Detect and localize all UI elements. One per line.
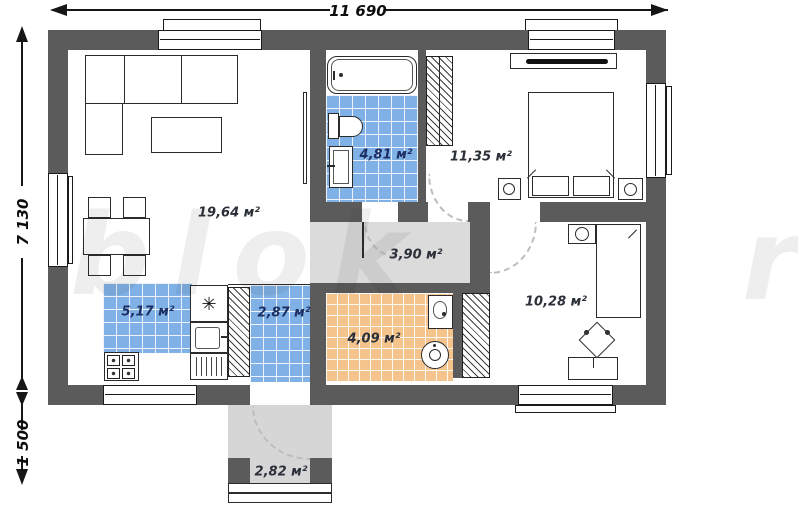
dining-table xyxy=(83,218,150,255)
single-bed xyxy=(596,224,641,318)
dimension-line xyxy=(386,9,668,11)
hallway-floor xyxy=(250,285,310,382)
bedroom-area-label: 11,35 м² xyxy=(450,150,512,165)
dimension-arrow-up xyxy=(16,26,28,42)
dining-chair xyxy=(88,197,111,218)
utility-sink-drain xyxy=(442,312,446,316)
wall-segment xyxy=(453,293,462,378)
stove-burner xyxy=(122,368,135,379)
dimension-arrow-left xyxy=(50,4,67,16)
bathroom-door-leaf xyxy=(362,222,364,258)
lamp xyxy=(624,183,637,196)
dimension-arrow-down xyxy=(16,392,28,406)
washing-machine-drum xyxy=(429,349,441,361)
washbasin-faucet xyxy=(327,165,335,167)
refrigerator-star-icon: ✳ xyxy=(201,294,216,315)
window-frame-line xyxy=(105,394,195,395)
bathtub-drain xyxy=(339,73,343,77)
floor-plan: ✳ 19,64 м² 4,81 м² 11,35 м² 3,90 м² 5,17… xyxy=(0,0,798,514)
dish-drainer xyxy=(190,353,228,380)
window-frame-line xyxy=(520,394,611,395)
wall-segment xyxy=(470,222,490,283)
wall-segment xyxy=(646,50,666,83)
bathtub-faucet xyxy=(333,71,335,80)
kitchen-sink-faucet xyxy=(221,336,228,338)
desk-divider xyxy=(593,357,594,368)
dining-chair xyxy=(123,255,146,276)
window-frame-line xyxy=(160,39,260,40)
sofa-chaise xyxy=(85,103,123,155)
lamp xyxy=(575,227,589,241)
porch-wall-stub xyxy=(310,458,332,483)
wall-segment xyxy=(48,30,158,50)
total-height-dimension: 7 130 xyxy=(14,199,32,246)
coffee-table xyxy=(151,117,222,153)
utility-sink-bowl xyxy=(433,301,447,319)
bedroom-door-arc xyxy=(428,174,468,222)
total-width-dimension: 11 690 xyxy=(329,2,386,20)
kitchen-wardrobe xyxy=(228,287,250,377)
wall-segment xyxy=(326,202,362,222)
pillow xyxy=(532,176,569,196)
toilet-bowl xyxy=(339,116,363,137)
tv xyxy=(526,59,608,64)
window-sill xyxy=(515,405,616,413)
porch-wall-stub xyxy=(228,458,250,483)
lamp xyxy=(503,183,515,195)
window-frame-line xyxy=(57,175,58,265)
window-sill xyxy=(68,176,73,264)
kitchen-window xyxy=(103,385,197,405)
refrigerator: ✳ xyxy=(190,285,228,322)
porch-area-label: 2,82 м² xyxy=(255,465,308,480)
dining-chair xyxy=(88,255,111,276)
wall-segment xyxy=(615,30,666,50)
desk-chair xyxy=(579,322,616,359)
dimension-line xyxy=(52,9,330,11)
dimension-line xyxy=(21,258,23,386)
window-sill xyxy=(666,86,672,175)
washbasin-inner xyxy=(333,150,349,184)
wall-segment xyxy=(310,385,518,405)
stove-burner xyxy=(107,368,120,379)
wall-segment xyxy=(398,202,428,222)
sofa xyxy=(85,55,238,104)
sofa-seam xyxy=(181,56,182,103)
wall-segment xyxy=(540,202,666,222)
corridor-area-label: 3,90 м² xyxy=(390,248,443,263)
living-room-area-label: 19,64 м² xyxy=(198,206,260,221)
porch-depth-dimension: 1 500 xyxy=(14,420,32,467)
wall-segment xyxy=(310,283,490,293)
dining-chair xyxy=(123,197,146,218)
second-bedroom-window xyxy=(518,385,613,405)
kitchen-sink-bowl xyxy=(195,327,220,349)
second-bedroom-area-label: 10,28 м² xyxy=(525,295,587,310)
bedroom-side-window xyxy=(646,83,666,178)
hallway-top-line xyxy=(228,284,310,285)
bathtub-inner xyxy=(331,59,413,91)
stove-burner xyxy=(122,355,135,366)
window-frame-line xyxy=(530,39,613,40)
open-door-leaf xyxy=(303,92,307,184)
hallway-area-label: 2,87 м² xyxy=(258,306,311,321)
wall-segment xyxy=(310,293,326,385)
second-bedroom-wardrobe xyxy=(462,293,490,378)
dimension-arrow-down xyxy=(16,469,28,485)
wall-segment xyxy=(310,50,326,222)
porch-step xyxy=(228,493,332,503)
dimension-line xyxy=(21,40,23,186)
chair-knob xyxy=(605,330,610,335)
wall-segment xyxy=(48,385,103,405)
stove-burner xyxy=(107,355,120,366)
wall-segment xyxy=(48,50,68,173)
bathroom-area-label: 4,81 м² xyxy=(360,148,413,163)
dimension-arrow-up xyxy=(16,376,28,390)
dimension-arrow-right xyxy=(651,4,668,16)
bedroom-top-window xyxy=(528,30,615,50)
pillow xyxy=(573,176,610,196)
watermark-tail: r xyxy=(742,205,797,317)
wall-segment xyxy=(468,202,490,222)
toilet-tank xyxy=(328,113,339,139)
living-room-side-window xyxy=(48,173,68,267)
second-bedroom-door-arc xyxy=(490,222,537,274)
living-room-window xyxy=(158,30,262,50)
wall-segment xyxy=(613,385,666,405)
wall-segment xyxy=(418,50,426,202)
kitchen-area-label: 5,17 м² xyxy=(122,305,175,320)
wall-segment xyxy=(262,30,528,50)
porch-step xyxy=(228,483,332,493)
window-frame-line xyxy=(655,85,656,176)
wall-segment xyxy=(197,385,250,405)
washing-machine-dot xyxy=(433,344,436,347)
utility-area-label: 4,09 м² xyxy=(348,332,401,347)
sofa-seam xyxy=(124,56,125,103)
wardrobe-divider xyxy=(439,57,440,145)
chair-knob xyxy=(584,330,589,335)
